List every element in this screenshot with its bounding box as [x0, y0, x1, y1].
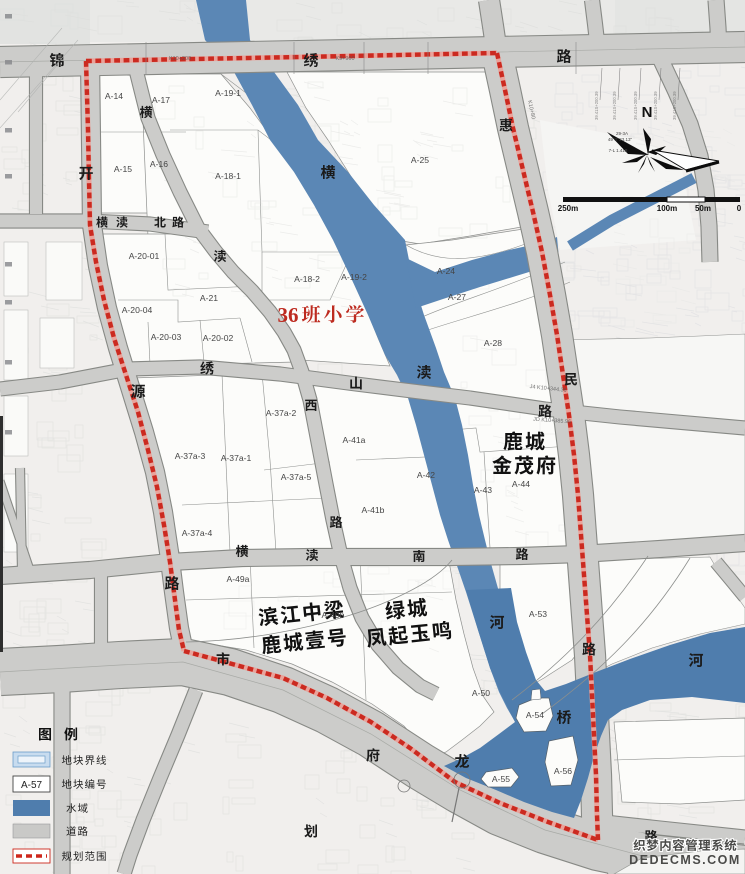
svg-text:K9+960: K9+960: [335, 56, 354, 62]
svg-text:A-25: A-25: [411, 155, 429, 165]
svg-text:DEDECMS.COM: DEDECMS.COM: [629, 853, 741, 867]
svg-text:N: N: [642, 104, 653, 121]
svg-text:39.41S+200.39: 39.41S+200.39: [612, 91, 617, 120]
svg-text:A-37a-5: A-37a-5: [281, 472, 312, 482]
svg-text:49°2' 23.13": 49°2' 23.13": [608, 137, 633, 142]
svg-text:7-L 1.418: 7-L 1.418: [609, 148, 628, 153]
svg-text:50m: 50m: [695, 204, 711, 213]
svg-text:A-16: A-16: [150, 159, 168, 169]
svg-text:A-37a-2: A-37a-2: [266, 408, 297, 418]
svg-text:A-42: A-42: [417, 470, 435, 480]
svg-text:A-54: A-54: [526, 710, 544, 720]
svg-text:A-49b: A-49b: [322, 610, 345, 620]
svg-text:39.41S+200.39: 39.41S+200.39: [672, 91, 677, 120]
svg-text:39.41S+200.39: 39.41S+200.39: [653, 91, 658, 120]
svg-text:A-15: A-15: [114, 164, 132, 174]
svg-text:A-19-2: A-19-2: [341, 272, 367, 282]
svg-text:A-20-04: A-20-04: [122, 305, 153, 315]
svg-text:K10+200: K10+200: [169, 56, 191, 62]
svg-text:A-17: A-17: [152, 95, 170, 105]
svg-text:A-43: A-43: [474, 485, 492, 495]
svg-text:0: 0: [737, 204, 742, 213]
svg-text:A-18-1: A-18-1: [215, 171, 241, 181]
svg-text:A-14: A-14: [105, 91, 123, 101]
svg-text:A-41a: A-41a: [343, 435, 366, 445]
svg-text:39.41S+200.39: 39.41S+200.39: [594, 91, 599, 120]
svg-text:A-49a: A-49a: [227, 574, 250, 584]
svg-text:A-24: A-24: [437, 266, 455, 276]
svg-text:A-53: A-53: [529, 609, 547, 619]
svg-text:A-28: A-28: [484, 338, 502, 348]
svg-text:A-37a-1: A-37a-1: [221, 453, 252, 463]
svg-text:39.41S+200.39: 39.41S+200.39: [633, 91, 638, 120]
svg-text:100m: 100m: [657, 204, 677, 213]
svg-text:A-37a-3: A-37a-3: [175, 451, 206, 461]
svg-text:A-21: A-21: [200, 293, 218, 303]
svg-text:36: 36: [278, 303, 299, 327]
svg-text:A-18-2: A-18-2: [294, 274, 320, 284]
svg-text:A-41b: A-41b: [362, 505, 385, 515]
svg-text:A-56: A-56: [554, 766, 572, 776]
svg-text:A-37a-4: A-37a-4: [182, 528, 213, 538]
svg-text:A-19-1: A-19-1: [215, 88, 241, 98]
svg-text:A-50: A-50: [472, 688, 490, 698]
svg-text:A-44: A-44: [512, 479, 530, 489]
svg-text:A-57: A-57: [21, 780, 43, 791]
svg-text:A-55: A-55: [492, 774, 510, 784]
svg-text:A-27: A-27: [448, 292, 466, 302]
svg-text:A-20-03: A-20-03: [151, 332, 182, 342]
svg-text:250m: 250m: [558, 204, 578, 213]
svg-text:A-20-01: A-20-01: [129, 251, 160, 261]
svg-text:A-20-02: A-20-02: [203, 333, 234, 343]
svg-text:29-3A: 29-3A: [616, 131, 628, 136]
